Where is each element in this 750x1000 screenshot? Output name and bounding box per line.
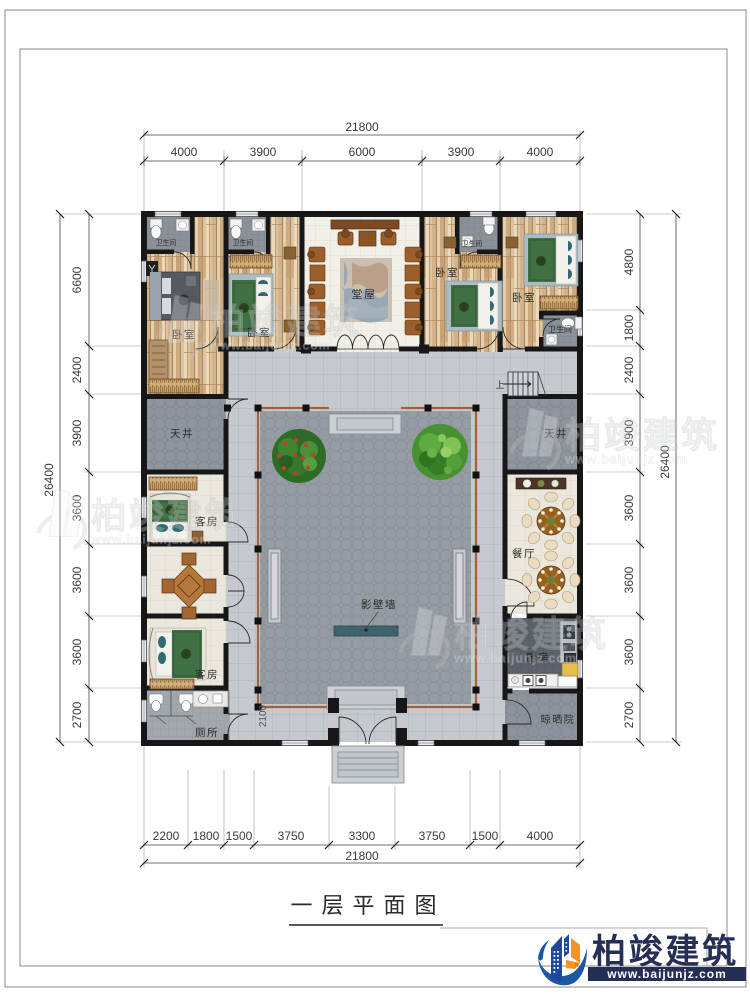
- svg-text:2100: 2100: [258, 704, 269, 727]
- svg-text:www.baijunjz.com: www.baijunjz.com: [606, 967, 727, 981]
- svg-text:6000: 6000: [349, 145, 376, 159]
- svg-text:卫生间: 卫生间: [548, 324, 572, 334]
- svg-text:卫生间: 卫生间: [156, 238, 177, 247]
- svg-text:3300: 3300: [349, 829, 376, 843]
- svg-text:4000: 4000: [171, 145, 198, 159]
- svg-text:卧室: 卧室: [512, 291, 536, 304]
- svg-text:3750: 3750: [419, 829, 446, 843]
- svg-text:3600: 3600: [622, 494, 636, 521]
- svg-text:26400: 26400: [42, 463, 56, 497]
- svg-text:2400: 2400: [70, 356, 84, 383]
- svg-text:2400: 2400: [622, 356, 636, 383]
- svg-text:3900: 3900: [448, 145, 475, 159]
- svg-text:餐厅: 餐厅: [512, 547, 536, 560]
- svg-text:2200: 2200: [153, 829, 180, 843]
- svg-text:卧室: 卧室: [435, 266, 459, 279]
- svg-text:客房: 客房: [195, 668, 219, 681]
- svg-text:6600: 6600: [70, 266, 84, 293]
- svg-text:一层平面图: 一层平面图: [290, 893, 445, 918]
- svg-text:4000: 4000: [527, 145, 554, 159]
- svg-text:21800: 21800: [345, 849, 379, 863]
- svg-text:3600: 3600: [622, 566, 636, 593]
- svg-text:1500: 1500: [226, 829, 253, 843]
- svg-text:晾晒院: 晾晒院: [541, 713, 576, 726]
- svg-text:卫生间: 卫生间: [462, 239, 483, 248]
- svg-text:3900: 3900: [70, 419, 84, 446]
- svg-text:厕所: 厕所: [195, 727, 219, 739]
- svg-text:上: 上: [495, 380, 504, 390]
- svg-text:2700: 2700: [622, 701, 636, 728]
- svg-text:2700: 2700: [70, 701, 84, 728]
- svg-text:3900: 3900: [250, 145, 277, 159]
- svg-text:www.baijunjz.com: www.baijunjz.com: [209, 339, 330, 353]
- svg-text:柏竣建筑: 柏竣建筑: [210, 302, 361, 342]
- svg-text:1500: 1500: [472, 829, 499, 843]
- svg-text:3750: 3750: [278, 829, 305, 843]
- svg-text:3600: 3600: [622, 638, 636, 665]
- svg-text:4800: 4800: [622, 248, 636, 275]
- svg-text:4000: 4000: [527, 829, 554, 843]
- svg-text:卫生间: 卫生间: [233, 238, 254, 247]
- svg-text:3600: 3600: [70, 638, 84, 665]
- svg-text:21800: 21800: [345, 120, 379, 134]
- svg-text:堂屋: 堂屋: [352, 288, 377, 301]
- svg-text:天井: 天井: [170, 427, 194, 440]
- svg-text:3600: 3600: [70, 566, 84, 593]
- svg-text:1800: 1800: [622, 314, 636, 341]
- svg-text:1800: 1800: [193, 829, 220, 843]
- svg-text:影壁墙: 影壁墙: [361, 598, 397, 611]
